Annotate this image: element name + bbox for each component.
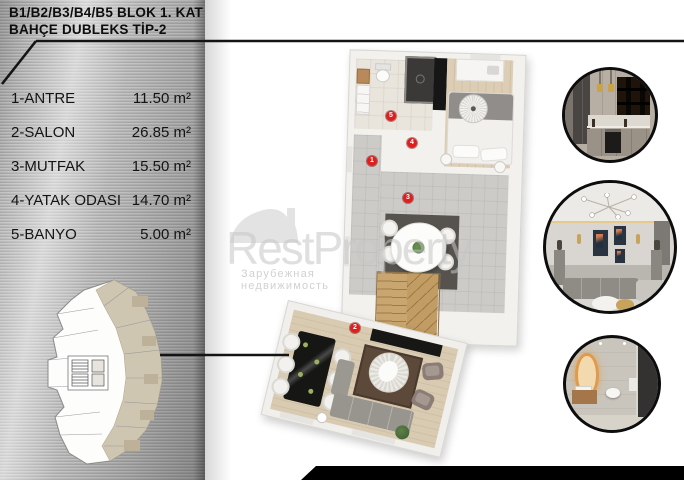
bathroom-dresser [356,85,371,115]
room-area: 14.70 m² [132,192,191,209]
wall-sconce [636,234,640,244]
oven [605,129,621,153]
wood-vanity [572,390,598,405]
wall-sconce [577,234,581,244]
bottom-black-bar [301,466,684,480]
kitchen-photo [562,67,658,163]
room-area: 11.50 m² [133,90,191,107]
window [347,146,353,172]
room-row-mutfak: 3-MUTFAK 15.50 m² [11,158,191,175]
window [344,236,350,266]
plate [303,342,309,348]
room-label: 3-MUTFAK [11,158,85,175]
pillow [480,147,508,162]
room-marker-salon: 2 [350,323,360,333]
pendant-light [610,70,612,84]
room-row-antre: 1-ANTRE 11.50 m² [11,90,191,107]
kitchen-tall-cabinet [565,70,573,160]
bottle [624,119,627,127]
room-row-salon: 2-SALON 26.85 m² [11,124,191,141]
room-label: 4-YATAK ODASI [11,192,121,209]
room-row-yatak-odasi: 4-YATAK ODASI 14.70 m² [11,192,191,209]
vanity-desk [456,59,505,82]
wall-art [613,225,628,246]
stair-winder [406,273,439,336]
room-label: 5-BANYO [11,226,77,243]
room-marker-yatak-odasi: 4 [407,138,417,148]
plate [297,371,303,377]
block-title: B1/B2/B3/B4/B5 BLOK 1. KAT [9,5,203,22]
pillow [452,145,479,159]
bottle [592,119,595,127]
upper-cabinets [590,70,617,117]
shower [404,56,436,104]
armchair [422,362,444,381]
bathroom-floor-strip [566,415,658,430]
nightstand [494,161,506,173]
bathroom-photo [563,335,661,433]
wall-art [592,229,609,257]
plate [308,388,314,394]
living-room-photo [543,180,677,314]
display-shelves [617,77,649,115]
pendant-light [599,70,601,84]
room-row-banyo: 5-BANYO 5.00 m² [11,226,191,243]
panel-edge-shadow [205,0,231,480]
floorplan-brochure: B1/B2/B3/B4/B5 BLOK 1. KAT BAHÇE DUBLEKS… [0,0,684,480]
room-label: 2-SALON [11,124,75,141]
gold-side-table [616,299,634,311]
chaise [636,280,664,300]
ceiling-spot [623,342,626,345]
wall-art [614,248,626,264]
room-marker-mutfak: 3 [403,193,413,203]
wall-hung-toilet [606,388,620,398]
towels [629,378,636,391]
watermark-tagline: Зарубежная недвижимость [241,268,329,292]
window [470,54,500,60]
watermark-house-icon [226,201,298,245]
room-area: 15.50 m² [132,158,191,175]
unit-type-title: BAHÇE DUBLEKS TİP-2 [9,22,203,39]
wood-cabinet [357,69,370,84]
room-marker-antre: 1 [367,156,377,166]
room-area: 5.00 m² [140,226,191,243]
floorplan-upper-level [340,49,526,346]
room-list: 1-ANTRE 11.50 m² 2-SALON 26.85 m² 3-MUTF… [11,90,191,260]
chandelier-icon [574,193,644,219]
plate [314,359,320,365]
room-marker-banyo: 5 [386,111,396,121]
plan-header: B1/B2/B3/B4/B5 BLOK 1. KAT BAHÇE DUBLEKS… [9,5,203,38]
ceiling-spot [599,342,602,345]
shower-area [636,342,658,417]
room-label: 1-ANTRE [11,90,75,107]
room-area: 26.85 m² [132,124,191,141]
building-site-plan [24,278,166,470]
